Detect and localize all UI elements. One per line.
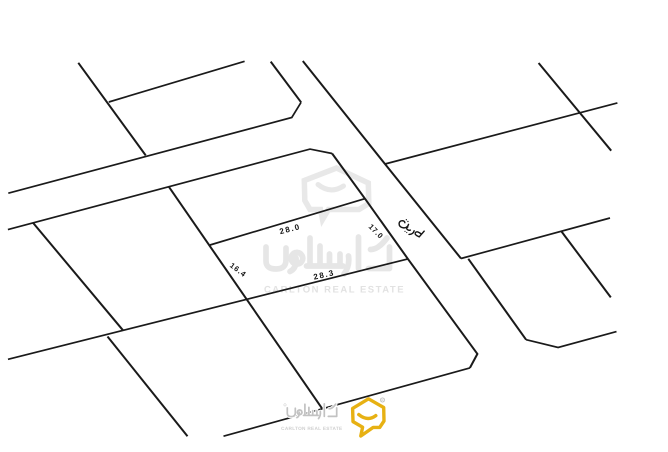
svg-text:CARLTON REAL ESTATE: CARLTON REAL ESTATE [281, 426, 342, 431]
